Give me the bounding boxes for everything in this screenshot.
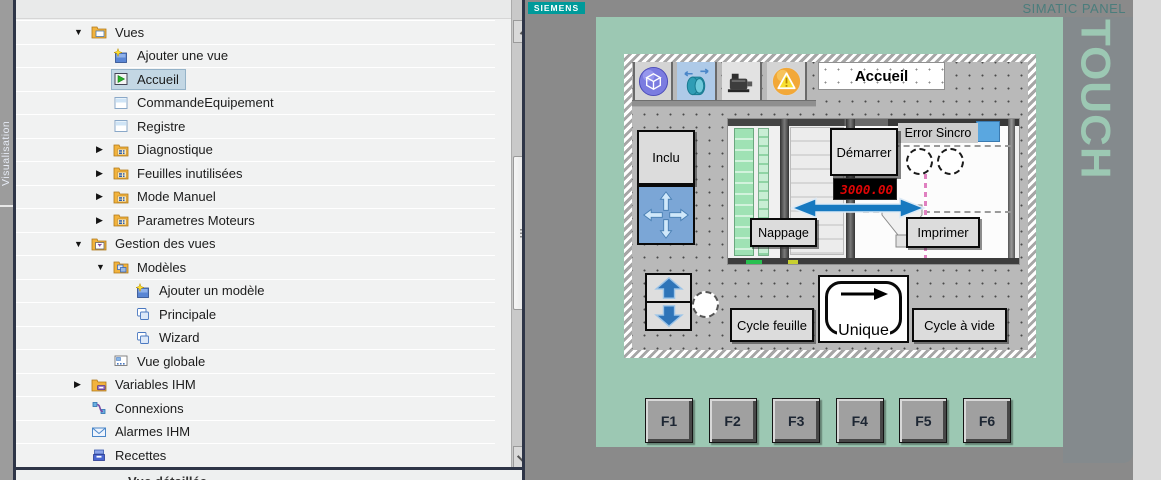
visualisation-rail-label: Visualisation	[0, 0, 13, 186]
touch-strip: TOUCH	[1063, 17, 1133, 463]
motor-button[interactable]	[722, 62, 762, 100]
cycle-feuille-button[interactable]: Cycle feuille	[730, 308, 814, 342]
fkey-f5[interactable]: F5	[899, 398, 947, 443]
expander-closed-icon[interactable]: ▶	[96, 191, 112, 202]
tree-item-feuilles-inutilisees[interactable]: ▶Feuilles inutilisées	[16, 161, 495, 185]
arrow-down-icon	[650, 304, 688, 328]
tree-item-label: Variables IHM	[111, 376, 200, 393]
tree-item-accueil[interactable]: Accueil	[16, 67, 495, 91]
unique-label: Unique	[837, 322, 890, 339]
screen-icon	[113, 118, 131, 134]
screen-group-icon	[113, 189, 131, 205]
round-indicator[interactable]	[692, 291, 719, 318]
fkey-f6[interactable]: F6	[963, 398, 1011, 443]
expander-closed-icon[interactable]: ▶	[96, 168, 112, 179]
screen-hatch-border: Accueil Inclu	[624, 54, 1036, 358]
simatic-panel-label: SIMATIC PANEL	[980, 1, 1126, 16]
expander-closed-icon[interactable]: ▶	[74, 379, 90, 390]
tree-item-alarmes-ihm[interactable]: Alarmes IHM	[16, 420, 495, 444]
hmi-alarms-icon	[91, 424, 109, 440]
expander-open-icon[interactable]: ▼	[74, 239, 90, 249]
rail-divider	[0, 205, 13, 207]
tree-item-mode-manuel[interactable]: ▶Mode Manuel	[16, 185, 495, 209]
expander-closed-icon[interactable]: ▶	[96, 215, 112, 226]
tree-item-diagnostique[interactable]: ▶Diagnostique	[16, 138, 495, 162]
fkey-f4[interactable]: F4	[836, 398, 884, 443]
tree-item-vues[interactable]: ▼Vues	[16, 20, 495, 44]
add-screen-icon	[113, 48, 131, 64]
add-template-icon	[135, 283, 153, 299]
arrow-up-icon	[650, 276, 688, 300]
tree-item-label: Mode Manuel	[133, 188, 220, 205]
screen-group-icon	[113, 212, 131, 228]
demarrer-button[interactable]: Démarrer	[830, 128, 898, 176]
connections-icon	[91, 400, 109, 416]
view-3d-icon	[637, 65, 670, 98]
cycle-a-vide-button[interactable]: Cycle à vide	[912, 308, 1007, 342]
rotation-button[interactable]	[677, 62, 717, 100]
tree-item-modeles[interactable]: ▼Modèles	[16, 255, 495, 279]
detail-view-title: Vue détaillée	[128, 474, 522, 480]
alarms-icon	[770, 65, 803, 98]
screen-title[interactable]: Accueil	[818, 62, 945, 90]
expander-closed-icon[interactable]: ▶	[96, 144, 112, 155]
view-3d-button[interactable]	[633, 62, 673, 100]
hmi-tags-folder-icon	[91, 377, 109, 393]
project-tree-rows: ▼VuesAjouter une vueAccueilCommandeEquip…	[16, 20, 495, 467]
screen-icon	[113, 95, 131, 111]
expander-open-icon[interactable]: ▼	[74, 27, 90, 37]
tree-item-label: Vue globale	[133, 353, 209, 370]
expander-open-icon[interactable]: ▼	[96, 262, 112, 272]
rotation-icon	[680, 65, 713, 98]
tree-item-registre[interactable]: Registre	[16, 114, 495, 138]
tree-item-label: Registre	[133, 118, 189, 135]
arrow-down-button[interactable]	[645, 301, 692, 331]
panel-bezel: Accueil Inclu	[596, 17, 1063, 447]
move-axes-button[interactable]	[637, 185, 695, 245]
tree-item-parametres-moteurs[interactable]: ▶Parametres Moteurs	[16, 208, 495, 232]
cross-arrows-icon	[641, 189, 691, 241]
screens-folder-icon	[91, 24, 109, 40]
tree-item-wizard[interactable]: Wizard	[16, 326, 495, 350]
right-arrow-icon	[838, 286, 890, 302]
tree-item-label: Diagnostique	[133, 141, 217, 158]
tree-item-label: Ajouter un modèle	[155, 282, 269, 299]
screen-group-icon	[113, 142, 131, 158]
toolbar-underline	[632, 100, 816, 107]
tree-item-gestion-des-vues[interactable]: ▼Gestion des vues	[16, 232, 495, 256]
fkey-f2[interactable]: F2	[709, 398, 757, 443]
tree-item-label: Parametres Moteurs	[133, 212, 259, 229]
scrollbar-thumb[interactable]	[513, 156, 522, 310]
tree-item-ajouter-un-modele[interactable]: Ajouter un modèle	[16, 279, 495, 303]
tree-item-label: Vues	[111, 24, 148, 41]
tree-item-ajouter-une-vue[interactable]: Ajouter une vue	[16, 44, 495, 68]
tree-item-label: Accueil	[133, 71, 183, 88]
imprimer-button[interactable]: Imprimer	[906, 217, 980, 248]
start-screen-icon	[113, 71, 131, 87]
fkey-f3[interactable]: F3	[772, 398, 820, 443]
siemens-logo: SIEMENS	[528, 2, 585, 14]
project-tree-panel: ▼VuesAjouter une vueAccueilCommandeEquip…	[16, 0, 522, 470]
tree-item-label: Alarmes IHM	[111, 423, 194, 440]
editor-canvas: SIEMENS SIMATIC PANEL	[525, 0, 1133, 480]
alarms-button[interactable]	[767, 62, 807, 100]
recipes-icon	[91, 447, 109, 463]
tree-item-label: Recettes	[111, 447, 170, 464]
tree-item-label: Connexions	[111, 400, 188, 417]
templates-folder-icon	[113, 259, 131, 275]
screen-group-icon	[113, 165, 131, 181]
screen-mgmt-icon	[91, 236, 109, 252]
tia-portal-window: Visualisation ▼VuesAjouter une vueAccuei…	[0, 0, 1161, 480]
tree-item-commandeequipement[interactable]: CommandeEquipement	[16, 91, 495, 115]
tree-item-label: Feuilles inutilisées	[133, 165, 247, 182]
global-screen-icon	[113, 353, 131, 369]
hmi-screen: Accueil Inclu	[632, 62, 1028, 350]
error-indicator-1[interactable]	[906, 148, 933, 175]
scrollbar-up-button[interactable]	[513, 20, 522, 43]
arrow-up-button[interactable]	[645, 273, 692, 303]
tree-item-label: CommandeEquipement	[133, 94, 278, 111]
right-margin	[1133, 0, 1161, 480]
fkey-f1[interactable]: F1	[645, 398, 693, 443]
nappage-button[interactable]: Nappage	[750, 218, 817, 247]
motor-icon	[725, 65, 758, 98]
tree-item-label: Wizard	[155, 329, 203, 346]
tree-item-principale[interactable]: Principale	[16, 302, 495, 326]
template-icon	[135, 306, 153, 322]
unique-button[interactable]: Unique	[818, 275, 909, 343]
tree-item-label: Ajouter une vue	[133, 47, 232, 64]
detail-view-panel: Vue détaillée	[16, 470, 522, 480]
tree-item-label: Principale	[155, 306, 220, 323]
template-icon	[135, 330, 153, 346]
tree-item-label: Gestion des vues	[111, 235, 219, 252]
error-sincro-label[interactable]: Error Sincro	[898, 123, 978, 143]
inclu-button[interactable]: Inclu	[637, 130, 695, 185]
tree-item-vue-globale[interactable]: Vue globale	[16, 349, 495, 373]
tree-item-variables-ihm[interactable]: ▶Variables IHM	[16, 373, 495, 397]
scrollbar-down-button[interactable]	[513, 446, 522, 469]
tree-item-connexions[interactable]: Connexions	[16, 396, 495, 420]
touch-label: TOUCH	[1071, 19, 1119, 180]
error-indicator-2[interactable]	[937, 148, 964, 175]
tree-item-recettes[interactable]: Recettes	[16, 443, 495, 467]
tree-item-label: Modèles	[133, 259, 190, 276]
visualisation-rail-tab[interactable]: Visualisation	[0, 0, 13, 480]
tree-scrollbar[interactable]	[511, 0, 522, 470]
project-tree-header	[16, 0, 522, 19]
updown-buttons	[645, 273, 692, 333]
